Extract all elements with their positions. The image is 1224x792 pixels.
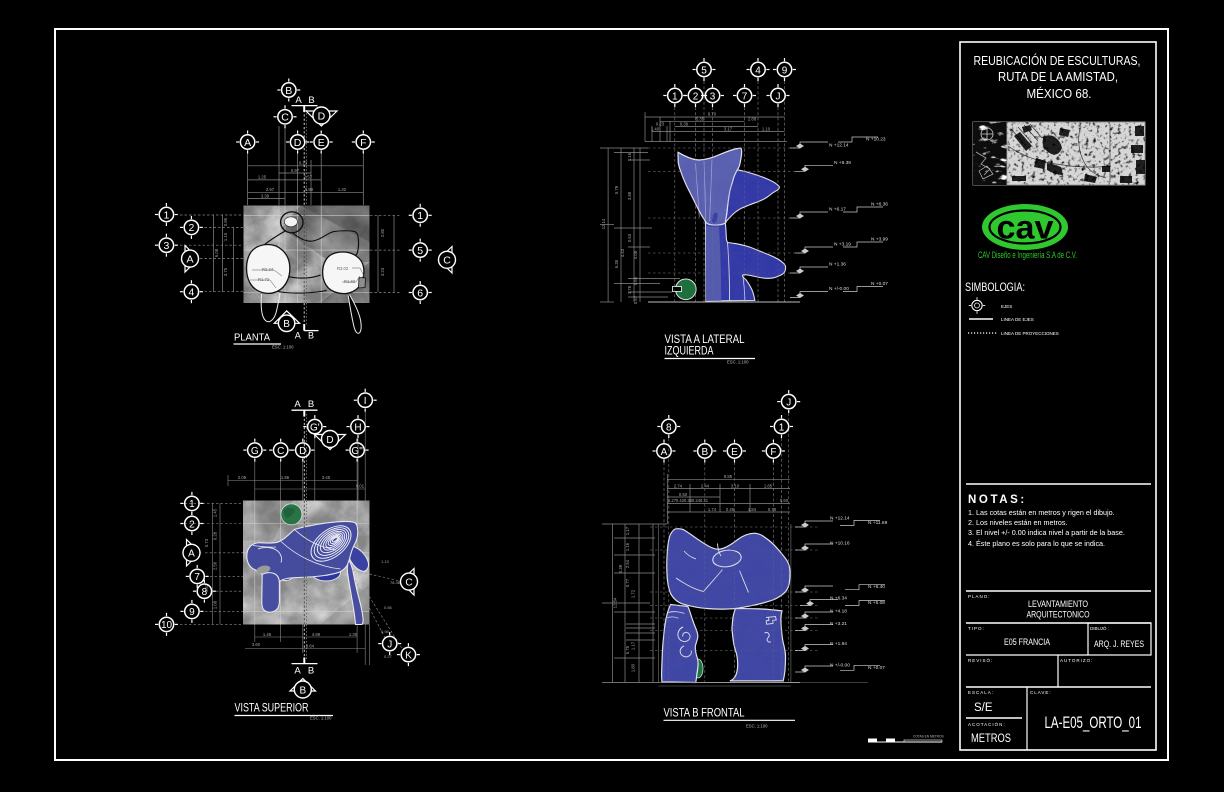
svg-text:I: I bbox=[364, 396, 367, 407]
svg-text:D: D bbox=[318, 110, 326, 122]
svg-text:N +/-0.00: N +/-0.00 bbox=[830, 663, 850, 669]
svg-text:1.40: 1.40 bbox=[651, 126, 660, 131]
svg-text:4.08: 4.08 bbox=[633, 250, 638, 259]
svg-text:ESC. 1:100: ESC. 1:100 bbox=[310, 716, 332, 721]
svg-text:8: 8 bbox=[202, 587, 208, 598]
svg-text:D: D bbox=[294, 137, 302, 149]
svg-text:1.74: 1.74 bbox=[708, 507, 717, 512]
svg-text:LINEA DE PROYECCIONES: LINEA DE PROYECCIONES bbox=[1001, 331, 1059, 336]
svg-text:1.17: 1.17 bbox=[625, 526, 630, 535]
svg-text:1.08: 1.08 bbox=[213, 600, 218, 609]
svg-text:N +0.07: N +0.07 bbox=[868, 665, 885, 671]
svg-text:E: E bbox=[318, 137, 325, 149]
svg-text:2: 2 bbox=[693, 91, 699, 102]
svg-text:0.67: 0.67 bbox=[633, 295, 638, 304]
svg-text:N +1.36: N +1.36 bbox=[829, 262, 846, 268]
svg-text:J: J bbox=[786, 397, 791, 408]
svg-text:9.85: 9.85 bbox=[724, 474, 733, 479]
svg-text:9: 9 bbox=[782, 65, 788, 76]
svg-text:N +6.40: N +6.40 bbox=[868, 584, 885, 590]
svg-text:2.74: 2.74 bbox=[674, 483, 683, 488]
svg-text:3: 3 bbox=[710, 91, 716, 102]
svg-text:C: C bbox=[405, 577, 412, 588]
svg-text:0.01: 0.01 bbox=[356, 484, 365, 489]
svg-text:5: 5 bbox=[417, 245, 423, 257]
svg-text:0.73: 0.73 bbox=[204, 538, 209, 547]
svg-text:0.86: 0.86 bbox=[223, 217, 228, 226]
svg-text:A: A bbox=[244, 137, 251, 149]
svg-text:N +11.69: N +11.69 bbox=[868, 520, 888, 526]
svg-text:J: J bbox=[387, 639, 392, 650]
svg-text:C: C bbox=[443, 255, 451, 267]
svg-text:ESC. 1:100: ESC. 1:100 bbox=[746, 724, 768, 729]
svg-text:0.66: 0.66 bbox=[633, 276, 638, 285]
svg-text:ACOTACIÓN:: ACOTACIÓN: bbox=[968, 721, 1006, 727]
svg-text:4.43: 4.43 bbox=[620, 248, 625, 257]
svg-text:1.16: 1.16 bbox=[627, 152, 632, 161]
svg-text:7: 7 bbox=[194, 572, 200, 583]
svg-text:A: A bbox=[188, 549, 195, 560]
svg-text:ARQ. J. REYES: ARQ. J. REYES bbox=[1094, 639, 1144, 650]
svg-text:N +3.19: N +3.19 bbox=[834, 242, 851, 248]
svg-text:3.10: 3.10 bbox=[731, 483, 740, 488]
svg-text:J: J bbox=[776, 91, 781, 102]
svg-text:N +1.84: N +1.84 bbox=[830, 641, 847, 647]
svg-text:0.63: 0.63 bbox=[627, 233, 632, 242]
svg-text:VISTA A LATERAL: VISTA A LATERAL bbox=[665, 334, 745, 346]
svg-text:3.60: 3.60 bbox=[252, 642, 261, 647]
svg-text:1.46: 1.46 bbox=[263, 632, 272, 637]
svg-text:EJES: EJES bbox=[1001, 304, 1012, 309]
svg-text:1. Las cotas están en metros y: 1. Las cotas están en metros y rigen el … bbox=[968, 508, 1115, 517]
svg-text:3.17: 3.17 bbox=[724, 126, 733, 131]
svg-text:N +9.39: N +9.39 bbox=[834, 160, 851, 166]
svg-text:A: A bbox=[661, 447, 668, 458]
svg-text:NOTAS:: NOTAS: bbox=[968, 494, 1027, 506]
svg-text:B: B bbox=[299, 685, 306, 696]
svg-text:CAV Diseño e Ingeniería S.A de: CAV Diseño e Ingeniería S.A de C.V. bbox=[978, 250, 1077, 260]
svg-text:N +12.14: N +12.14 bbox=[830, 516, 850, 522]
svg-text:PLANTA: PLANTA bbox=[234, 332, 270, 344]
svg-text:N +0.07: N +0.07 bbox=[871, 281, 888, 287]
svg-text:C: C bbox=[277, 446, 284, 457]
svg-text:VISTA B FRONTAL: VISTA B FRONTAL bbox=[664, 708, 745, 720]
svg-text:N +6.34: N +6.34 bbox=[830, 596, 847, 602]
svg-text:3.23: 3.23 bbox=[380, 267, 385, 276]
svg-text:10: 10 bbox=[161, 620, 173, 631]
svg-text:C: C bbox=[281, 112, 289, 124]
svg-text:N +/-0.00: N +/-0.00 bbox=[829, 286, 849, 292]
svg-text:0.77: 0.77 bbox=[625, 578, 630, 587]
svg-text:9: 9 bbox=[189, 607, 195, 618]
svg-text:N +10.16: N +10.16 bbox=[830, 541, 850, 547]
svg-text:LA-E05_ORTO_01: LA-E05_ORTO_01 bbox=[1045, 714, 1142, 732]
svg-text:3.88: 3.88 bbox=[627, 191, 632, 200]
svg-text:0.50: 0.50 bbox=[679, 492, 688, 497]
svg-text:6: 6 bbox=[417, 287, 423, 299]
svg-text:1.80: 1.80 bbox=[631, 663, 636, 672]
svg-text:0.31: 0.31 bbox=[700, 498, 709, 503]
svg-text:D: D bbox=[326, 435, 333, 446]
svg-text:0.36: 0.36 bbox=[680, 122, 689, 127]
svg-text:1: 1 bbox=[163, 209, 169, 221]
svg-text:K: K bbox=[405, 650, 412, 661]
svg-text:0.56: 0.56 bbox=[384, 605, 393, 610]
svg-text:3.45: 3.45 bbox=[322, 475, 331, 480]
svg-text:1.72: 1.72 bbox=[631, 589, 636, 598]
svg-text:8: 8 bbox=[666, 422, 672, 433]
svg-text:2.09: 2.09 bbox=[238, 475, 247, 480]
svg-text:12.54: 12.54 bbox=[613, 597, 618, 608]
svg-text:6.39: 6.39 bbox=[618, 564, 623, 573]
svg-text:2: 2 bbox=[188, 222, 194, 234]
svg-text:3.75: 3.75 bbox=[223, 267, 228, 276]
svg-text:12.14: 12.14 bbox=[601, 218, 606, 229]
svg-text:R1.72: R1.72 bbox=[258, 277, 270, 282]
svg-text:VISTA SUPERIOR: VISTA SUPERIOR bbox=[235, 703, 309, 715]
svg-text:3: 3 bbox=[163, 240, 169, 252]
svg-text:1.16: 1.16 bbox=[625, 542, 630, 551]
svg-text:5.35: 5.35 bbox=[696, 117, 705, 122]
svg-text:3. El nivel +/- 0.00 indica ni: 3. El nivel +/- 0.00 indica nivel a part… bbox=[968, 528, 1125, 537]
svg-text:5.75: 5.75 bbox=[625, 645, 630, 654]
svg-text:4.89: 4.89 bbox=[312, 632, 321, 637]
svg-text:1.45: 1.45 bbox=[213, 508, 218, 517]
svg-text:E: E bbox=[731, 447, 738, 458]
svg-text:4: 4 bbox=[755, 65, 761, 76]
svg-text:6.08: 6.08 bbox=[214, 248, 219, 257]
svg-text:N +12.14: N +12.14 bbox=[829, 143, 849, 149]
svg-text:ESCALA:: ESCALA: bbox=[968, 690, 994, 695]
svg-text:4: 4 bbox=[188, 287, 194, 299]
svg-text:LINEA DE EJES: LINEA DE EJES bbox=[1001, 317, 1034, 322]
svg-text:SIMBOLOGIA:: SIMBOLOGIA: bbox=[965, 282, 1025, 294]
svg-text:0.78: 0.78 bbox=[768, 507, 777, 512]
svg-text:R3.02: R3.02 bbox=[337, 266, 349, 271]
svg-text:1.32: 1.32 bbox=[338, 187, 347, 192]
svg-text:1.78: 1.78 bbox=[627, 285, 632, 294]
svg-text:3.39: 3.39 bbox=[261, 193, 270, 198]
svg-text:1: 1 bbox=[779, 422, 785, 433]
svg-text:D: D bbox=[299, 446, 306, 457]
svg-text:A: A bbox=[186, 253, 193, 265]
svg-text:A: A bbox=[294, 399, 301, 410]
svg-text:DIBUJÓ :: DIBUJÓ : bbox=[1090, 625, 1109, 631]
svg-text:B: B bbox=[283, 319, 290, 330]
svg-text:1: 1 bbox=[672, 91, 678, 102]
svg-text:N +3.99: N +3.99 bbox=[871, 237, 888, 243]
svg-text:R1.60: R1.60 bbox=[344, 279, 356, 284]
svg-text:ARQUITECTONICO: ARQUITECTONICO bbox=[1027, 610, 1090, 621]
svg-text:78.36: 78.36 bbox=[390, 580, 401, 585]
svg-text:1.84: 1.84 bbox=[748, 507, 757, 512]
svg-text:METROS: METROS bbox=[971, 733, 1011, 745]
svg-text:H: H bbox=[354, 422, 361, 433]
svg-text:N +4.18: N +4.18 bbox=[830, 609, 847, 615]
svg-text:1: 1 bbox=[417, 210, 423, 222]
svg-text:G": G" bbox=[351, 446, 363, 457]
svg-text:F: F bbox=[770, 447, 776, 458]
svg-text:1.25: 1.25 bbox=[258, 175, 267, 180]
svg-text:8.64: 8.64 bbox=[306, 643, 315, 648]
svg-text:2.56: 2.56 bbox=[213, 561, 218, 570]
svg-text:5: 5 bbox=[701, 65, 707, 76]
svg-text:B: B bbox=[308, 666, 314, 677]
svg-text:A: A bbox=[294, 666, 301, 677]
svg-text:COTAS EN METROS: COTAS EN METROS bbox=[913, 735, 944, 739]
svg-text:G': G' bbox=[310, 422, 320, 433]
svg-text:F: F bbox=[360, 137, 366, 149]
svg-text:IZQUIERDA: IZQUIERDA bbox=[665, 346, 714, 358]
svg-text:B: B bbox=[308, 399, 314, 410]
svg-text:1.15: 1.15 bbox=[223, 232, 228, 241]
svg-text:N +3.21: N +3.21 bbox=[830, 621, 847, 627]
svg-text:A: A bbox=[295, 95, 302, 106]
svg-text:0.98: 0.98 bbox=[381, 629, 390, 634]
svg-text:N +6.17: N +6.17 bbox=[829, 207, 846, 213]
svg-text:B: B bbox=[285, 85, 292, 97]
svg-text:E05 FRANCIA: E05 FRANCIA bbox=[1004, 637, 1050, 648]
svg-text:0.49: 0.49 bbox=[726, 507, 735, 512]
svg-text:A: A bbox=[295, 331, 301, 341]
svg-text:2: 2 bbox=[189, 519, 195, 530]
svg-text:1.86: 1.86 bbox=[281, 475, 290, 480]
svg-text:MÉXICO 68.: MÉXICO 68. bbox=[1027, 86, 1092, 101]
svg-text:1.85: 1.85 bbox=[764, 483, 773, 488]
svg-text:2. Los niveles están en metros: 2. Los niveles están en metros. bbox=[968, 518, 1067, 527]
svg-text:0.97: 0.97 bbox=[291, 168, 300, 173]
svg-text:R2.34: R2.34 bbox=[262, 267, 274, 272]
svg-text:1: 1 bbox=[189, 499, 195, 510]
svg-text:1.13: 1.13 bbox=[381, 559, 390, 564]
svg-text:B: B bbox=[308, 331, 314, 341]
svg-text:cav: cav bbox=[997, 209, 1055, 246]
svg-text:N +6.36: N +6.36 bbox=[871, 202, 888, 208]
svg-text:1.17: 1.17 bbox=[631, 641, 636, 650]
svg-text:2.54: 2.54 bbox=[625, 559, 630, 568]
svg-text:2.80: 2.80 bbox=[380, 228, 385, 237]
svg-text:1.30: 1.30 bbox=[349, 632, 358, 637]
svg-text:AUTORIZO:: AUTORIZO: bbox=[1060, 658, 1093, 663]
svg-text:N +10.23: N +10.23 bbox=[866, 137, 886, 143]
svg-text:5.79: 5.79 bbox=[614, 185, 619, 194]
svg-text:ESC. 1:100: ESC. 1:100 bbox=[727, 360, 749, 365]
svg-text:G: G bbox=[251, 446, 259, 457]
svg-text:REUBICACIÓN DE ESCULTURAS,: REUBICACIÓN DE ESCULTURAS, bbox=[974, 53, 1141, 68]
svg-text:2.57: 2.57 bbox=[304, 175, 313, 180]
svg-text:CLAVE:: CLAVE: bbox=[1030, 690, 1052, 695]
svg-text:6.35: 6.35 bbox=[614, 259, 619, 268]
svg-text:TIPO:: TIPO: bbox=[968, 626, 985, 631]
svg-text:2.88: 2.88 bbox=[748, 117, 757, 122]
svg-text:B: B bbox=[701, 447, 708, 458]
svg-text:RUTA DE LA AMISTAD,: RUTA DE LA AMISTAD, bbox=[998, 69, 1118, 84]
svg-text:N +5.08: N +5.08 bbox=[868, 600, 885, 606]
svg-text:PLANO:: PLANO: bbox=[968, 594, 991, 599]
svg-text:0.27: 0.27 bbox=[384, 654, 393, 659]
svg-text:REVISÓ:: REVISÓ: bbox=[968, 657, 993, 663]
svg-text:1.10: 1.10 bbox=[762, 126, 771, 131]
svg-text:LEVANTAMIENTO: LEVANTAMIENTO bbox=[1028, 599, 1088, 610]
svg-text:2.97: 2.97 bbox=[266, 187, 275, 192]
svg-text:S/E: S/E bbox=[974, 702, 993, 714]
svg-text:2.44: 2.44 bbox=[701, 483, 710, 488]
svg-text:B: B bbox=[308, 95, 314, 106]
svg-text:4. Éste plano es solo para lo: 4. Éste plano es solo para lo que se ind… bbox=[968, 539, 1105, 548]
svg-text:ESC. 1:100: ESC. 1:100 bbox=[272, 345, 294, 350]
svg-text:7: 7 bbox=[742, 91, 748, 102]
svg-text:0.28: 0.28 bbox=[213, 531, 218, 540]
